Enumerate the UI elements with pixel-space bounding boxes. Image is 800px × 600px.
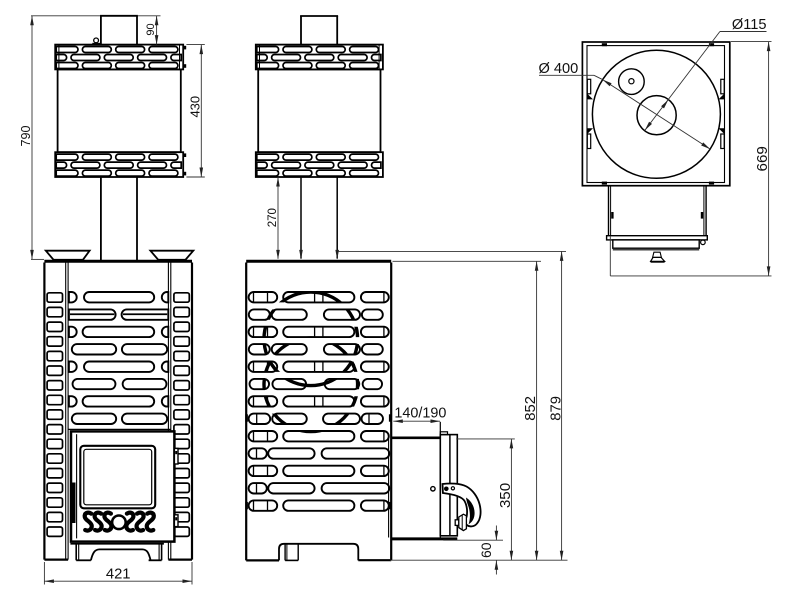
svg-text:270: 270 bbox=[267, 208, 279, 227]
svg-text:90: 90 bbox=[145, 23, 157, 35]
svg-text:Ø115: Ø115 bbox=[732, 17, 767, 33]
svg-text:879: 879 bbox=[548, 396, 564, 421]
svg-text:669: 669 bbox=[754, 146, 771, 171]
svg-text:421: 421 bbox=[106, 566, 131, 582]
svg-text:790: 790 bbox=[19, 125, 33, 146]
svg-text:350: 350 bbox=[497, 483, 514, 508]
svg-text:140/190: 140/190 bbox=[394, 405, 446, 421]
svg-text:60: 60 bbox=[478, 542, 494, 558]
svg-text:Ø 400: Ø 400 bbox=[539, 61, 579, 77]
svg-text:852: 852 bbox=[523, 396, 539, 421]
svg-text:430: 430 bbox=[188, 96, 203, 118]
